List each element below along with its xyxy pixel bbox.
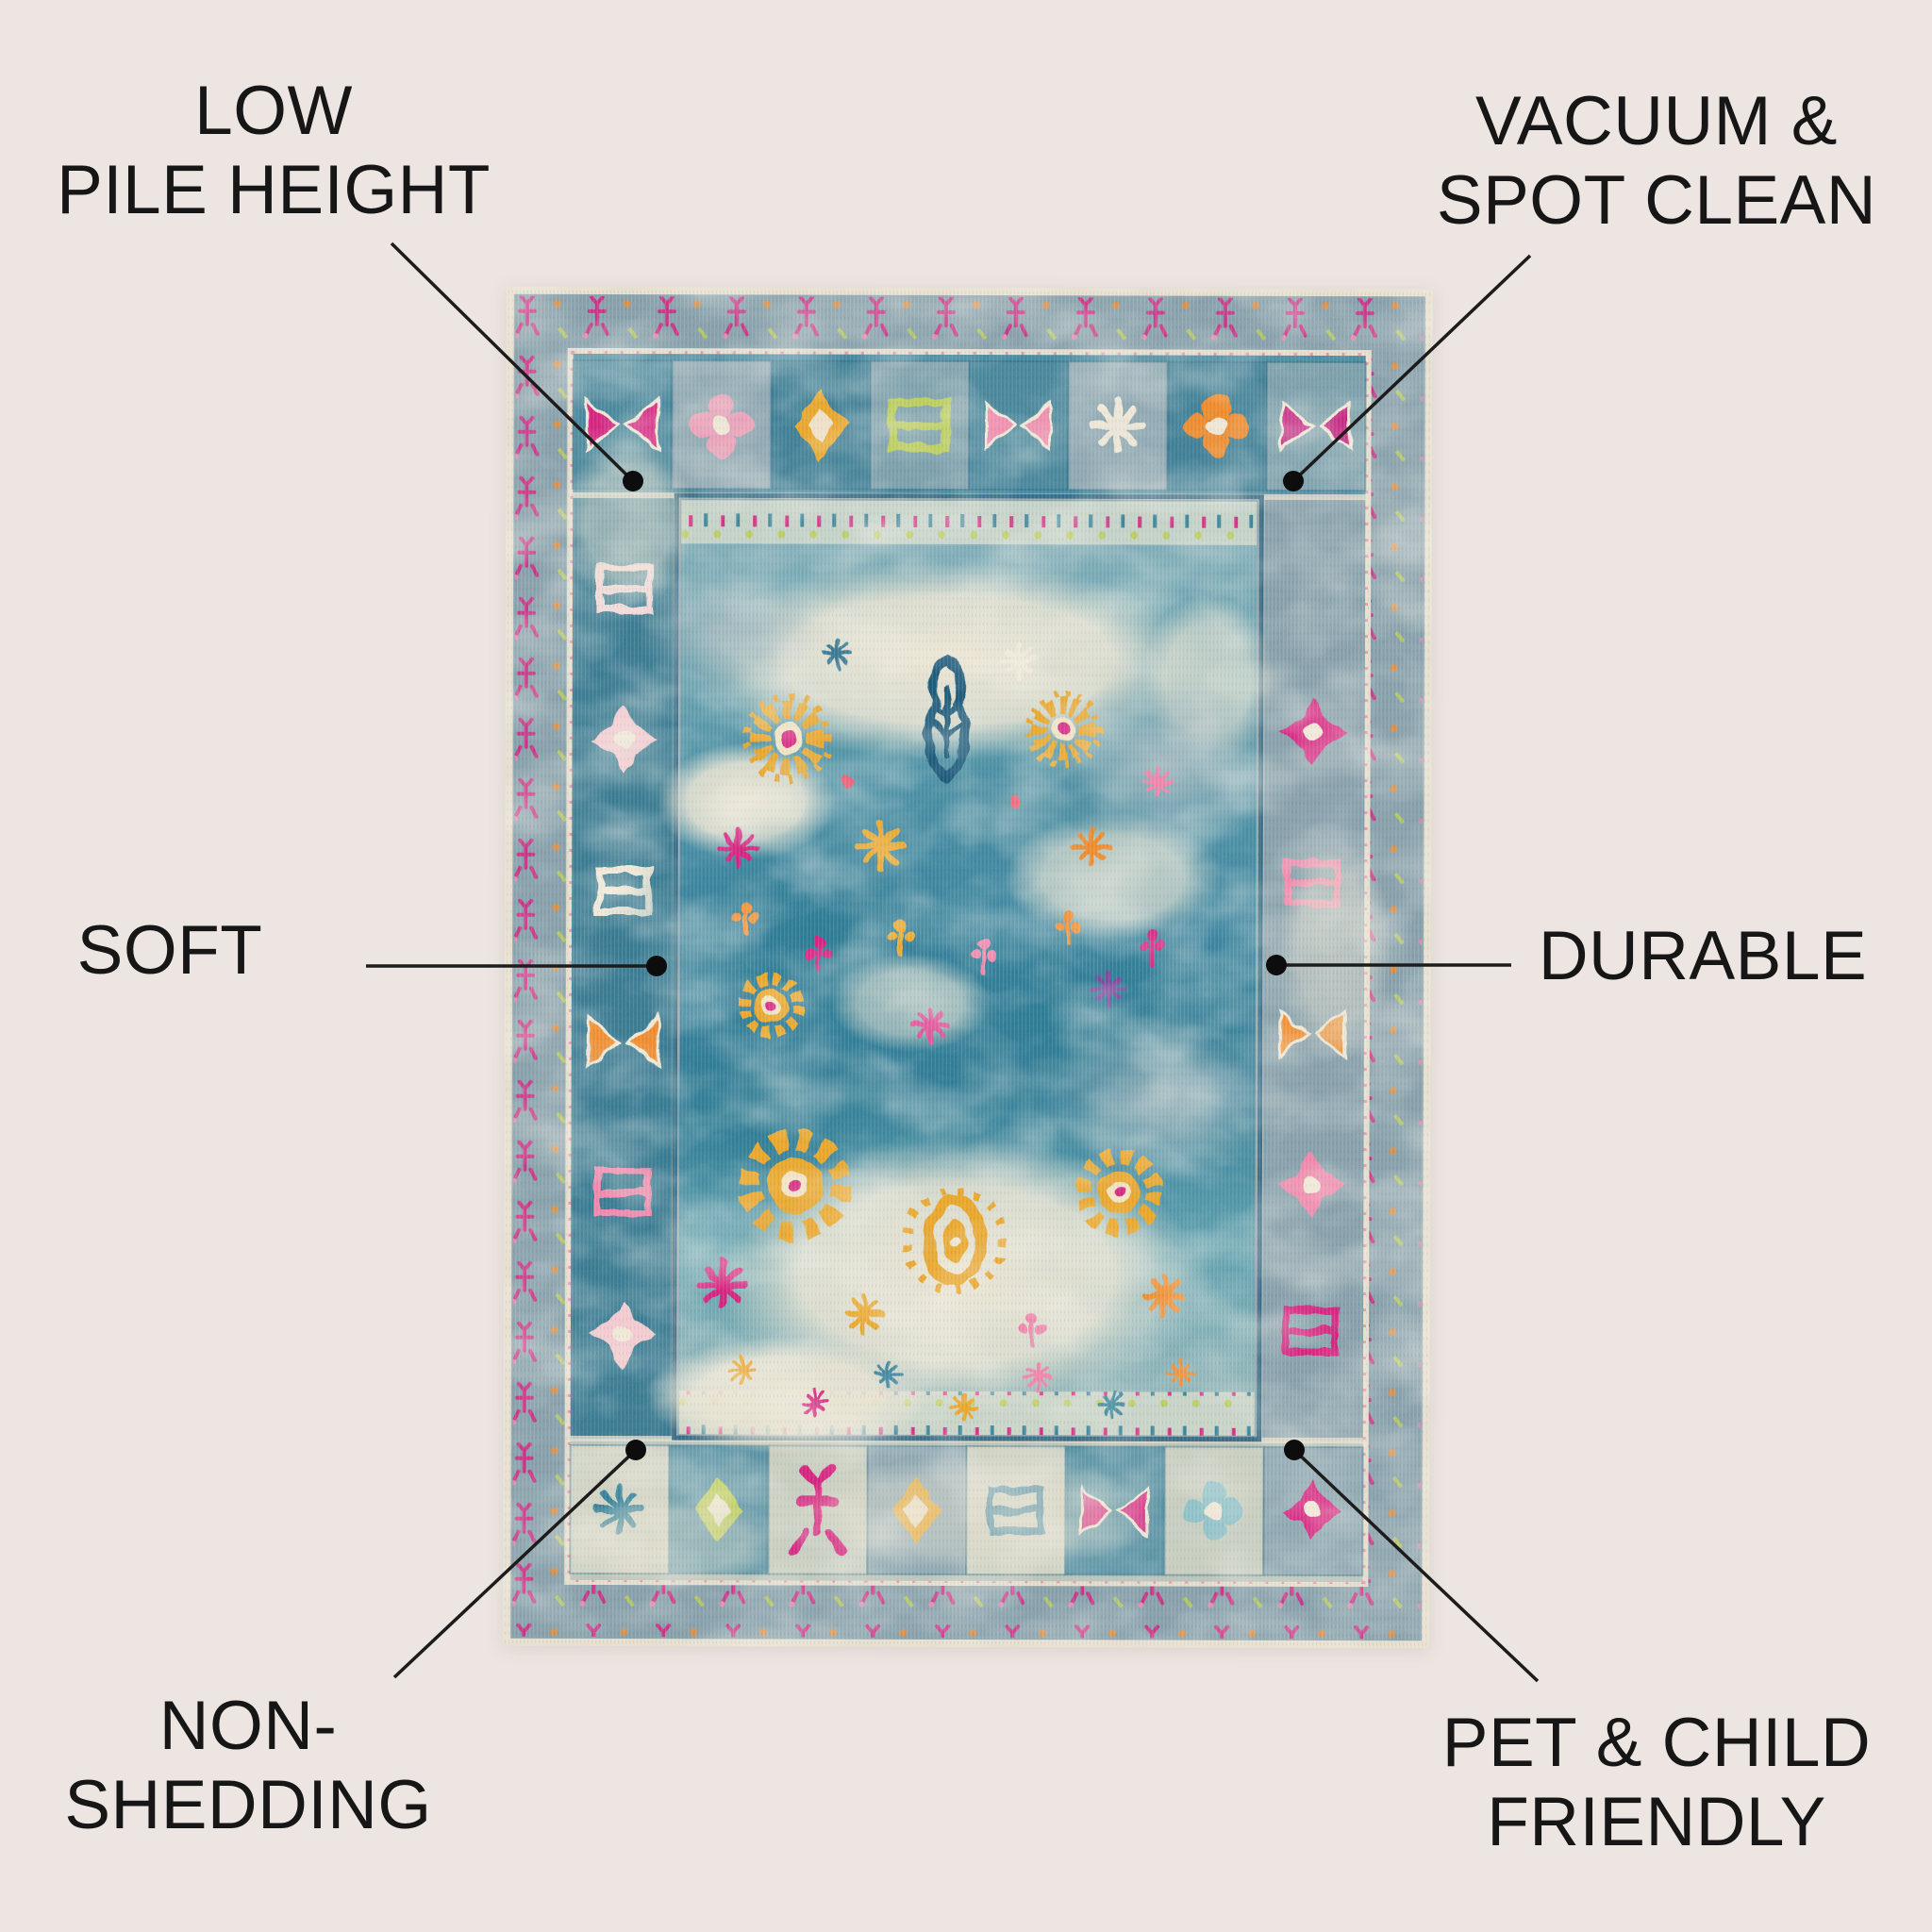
rug-image <box>503 287 1433 1649</box>
feature-text: SOFT <box>77 911 263 991</box>
feature-text: LOW <box>57 72 491 151</box>
feature-text: NON- <box>64 1687 431 1766</box>
feature-text: VACUUM & <box>1437 82 1876 161</box>
feature-text: PILE HEIGHT <box>57 151 491 230</box>
feature-text: DURABLE <box>1539 917 1867 996</box>
feature-label-low-pile-height: LOW PILE HEIGHT <box>57 72 491 230</box>
feature-label-non-shedding: NON- SHEDDING <box>64 1687 431 1845</box>
feature-text: FRIENDLY <box>1442 1783 1871 1862</box>
rug-feature-infographic: LOW PILE HEIGHT VACUUM & SPOT CLEAN SOFT… <box>0 0 1932 1932</box>
feature-label-soft: SOFT <box>77 911 263 991</box>
rug-illustration <box>503 287 1433 1649</box>
feature-label-durable: DURABLE <box>1539 917 1867 996</box>
feature-text: SPOT CLEAN <box>1437 161 1876 241</box>
feature-text: SHEDDING <box>64 1766 431 1845</box>
feature-label-pet-child-friendly: PET & CHILD FRIENDLY <box>1442 1704 1871 1862</box>
feature-text: PET & CHILD <box>1442 1704 1871 1783</box>
feature-label-vacuum-spot-clean: VACUUM & SPOT CLEAN <box>1437 82 1876 241</box>
